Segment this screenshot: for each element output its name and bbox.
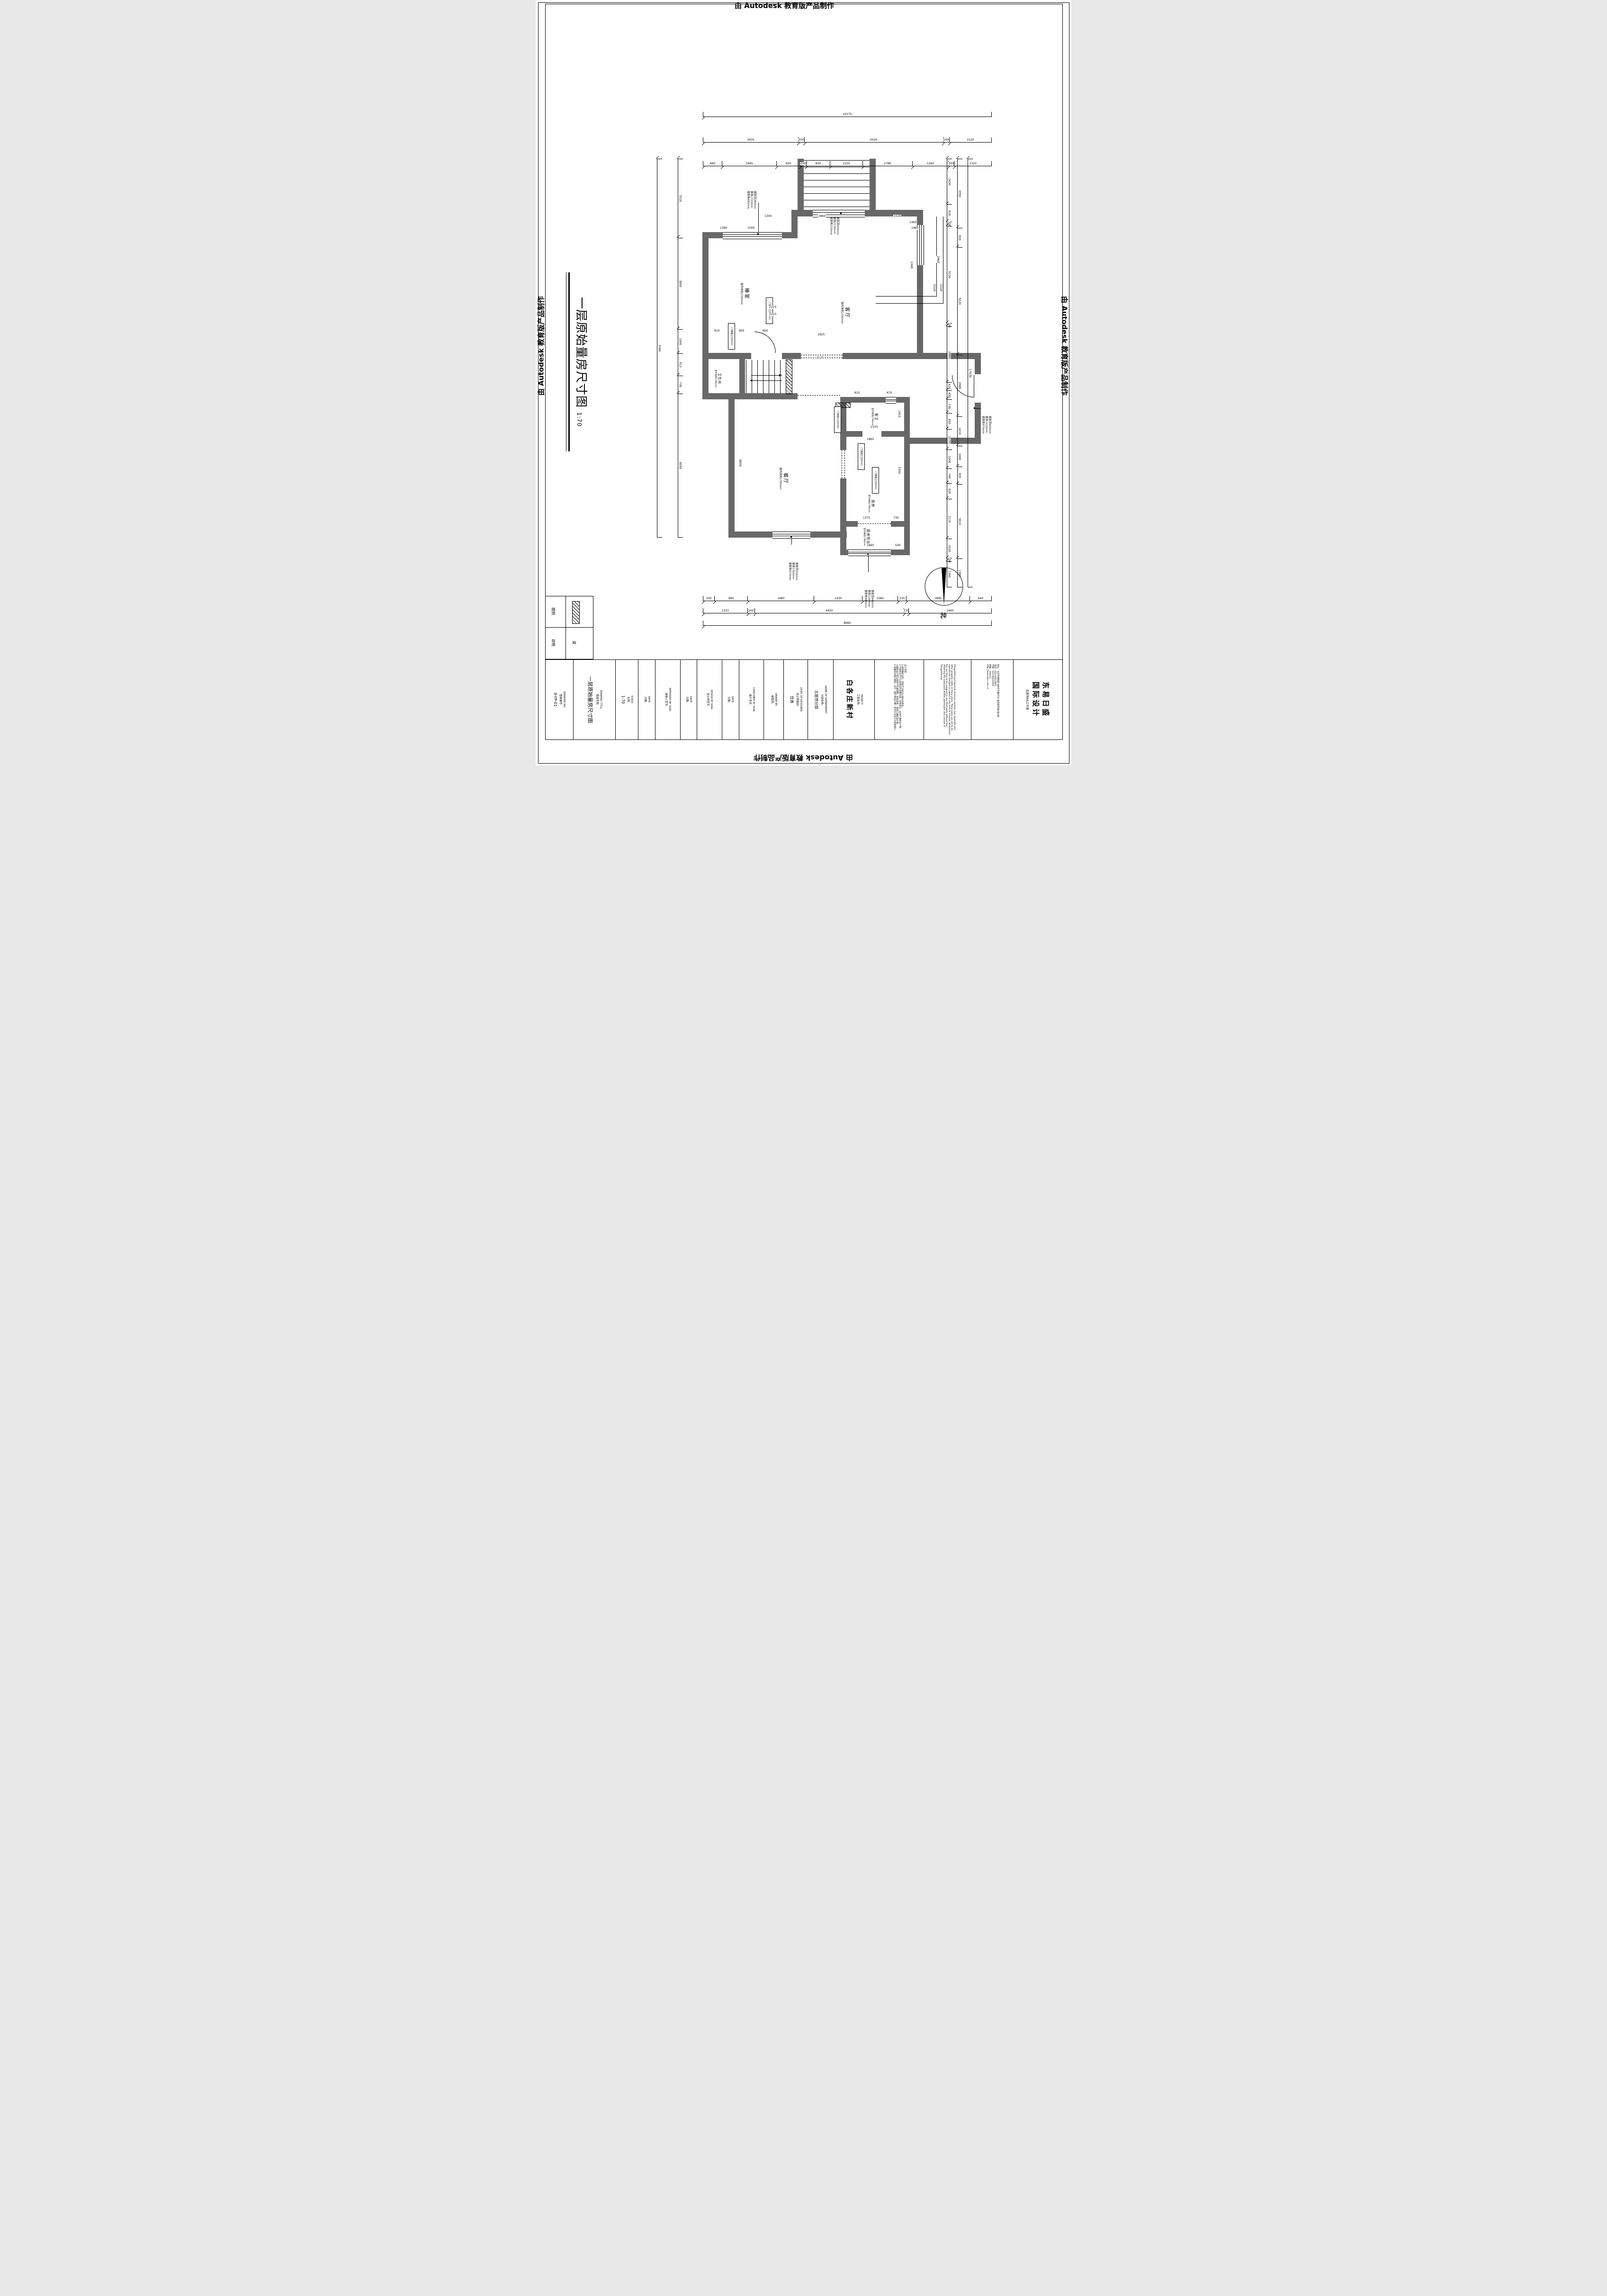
title-underline-thin bbox=[566, 272, 566, 451]
dim: 5220 bbox=[933, 284, 936, 291]
wall bbox=[791, 210, 798, 238]
window-guestbath bbox=[886, 397, 896, 404]
dim-segment: 640 bbox=[970, 596, 992, 601]
dim-value: 17630 bbox=[969, 368, 972, 378]
dim: 1380 bbox=[719, 226, 727, 230]
window-balcony bbox=[848, 549, 891, 556]
dim-segment: 3320 bbox=[678, 159, 683, 238]
dim-value: 3350 bbox=[958, 189, 961, 198]
dim: 5220 bbox=[939, 284, 943, 291]
tb-address: 地址：北京市朝阳区北四环东路65号 居然装饰城2座4层 电话：010-84633… bbox=[971, 660, 1013, 739]
dim-value: 1070 bbox=[948, 436, 951, 444]
dim: 2210 bbox=[769, 306, 777, 309]
page-title-scale: 1:70 bbox=[576, 412, 583, 427]
dim-chain-top-mid: 343520050202001520 bbox=[703, 137, 992, 143]
dim-segment: 1780 bbox=[862, 161, 913, 166]
legend-header: 图例 bbox=[551, 608, 556, 615]
dim-value: 920 bbox=[948, 210, 951, 216]
watermark-bottom: 由 Autodesk 教育版产品制作 bbox=[725, 752, 881, 764]
north-label: 北 bbox=[938, 608, 950, 622]
door-note: 门洞高2150mm bbox=[766, 297, 773, 324]
dim-value: 2980 bbox=[958, 382, 961, 390]
leader-dot bbox=[974, 407, 975, 409]
dim-value: 200 bbox=[798, 138, 804, 142]
dim-segment: 450 bbox=[947, 390, 952, 399]
opening-dash bbox=[842, 450, 842, 478]
dim: 730 bbox=[893, 516, 899, 520]
dim-segment: 200 bbox=[747, 608, 754, 613]
leader bbox=[975, 408, 981, 409]
dim: 3350 bbox=[898, 467, 901, 474]
dim-segment: 5020 bbox=[804, 137, 943, 142]
dim-value: 2430 bbox=[948, 178, 951, 186]
tb-drawing-title: DRAWING TITLE: 图纸名称: 一层原始量房尺寸图 bbox=[573, 660, 615, 739]
dim-value: 1260 bbox=[926, 162, 934, 165]
dim-value: 1060 bbox=[876, 597, 884, 600]
dim-chain-right-mid: 3350920522029801410100082036101360 bbox=[957, 159, 962, 587]
dim-value: 3320 bbox=[679, 194, 682, 202]
tb-notes: 设计说明: 1.除特殊标注外，所有尺寸标注以毫米为单位。 2.平面标注尺寸以现场… bbox=[874, 660, 924, 739]
dim: 2210 bbox=[769, 313, 777, 316]
tb-date: DATE: 日期: bbox=[722, 660, 739, 739]
dim: 1300 bbox=[764, 215, 772, 218]
leader-dot bbox=[757, 233, 759, 234]
leader bbox=[758, 203, 759, 232]
dim: 1460 bbox=[909, 221, 917, 224]
wall bbox=[843, 353, 923, 359]
wall-guestbath-top bbox=[840, 397, 910, 403]
dim-segment: 5220 bbox=[958, 247, 962, 355]
opening-dash bbox=[844, 450, 845, 478]
dim-value: 913 bbox=[679, 362, 682, 368]
room-label-bedroom: 睡室室内净高2780mm bbox=[738, 265, 753, 322]
arrow-left-icon: ◀ bbox=[750, 378, 752, 382]
stair-cut-hatch bbox=[786, 360, 792, 394]
dim-value: 6050 bbox=[679, 461, 682, 469]
dim-segment: 830 bbox=[806, 161, 830, 166]
dim-segment: 1980 bbox=[747, 596, 814, 601]
window-note-entry: 窗距顶400mm窗高2230mm窗距地150mm bbox=[828, 198, 840, 254]
dim-value: 200 bbox=[748, 609, 754, 612]
dim-segment: 1000 bbox=[678, 329, 683, 353]
dim-value: 660 bbox=[709, 162, 716, 165]
drawing-sheet: 由 Autodesk 教育版产品制作 由 Autodesk 教育版产品制作 由 … bbox=[536, 0, 1071, 765]
tb-consumer: CONSUMER BY SIGN: 客户签字: bbox=[739, 660, 763, 739]
dim: 2860 bbox=[818, 215, 826, 218]
dim-segment: 1430 bbox=[814, 596, 862, 601]
dim-segment: 830 bbox=[776, 161, 800, 166]
dim-value: 830 bbox=[815, 162, 821, 165]
wall-stair-right bbox=[870, 159, 876, 216]
dim-segment: 1260 bbox=[912, 161, 948, 166]
dim-segment: 2110 bbox=[947, 499, 952, 539]
dim: 1375 bbox=[862, 516, 871, 520]
tb-drawn: DRAWN BY: 制图员: bbox=[763, 660, 783, 739]
dim-value: 1945 bbox=[745, 162, 753, 165]
leader bbox=[791, 538, 792, 545]
dim: 540 bbox=[895, 544, 901, 547]
door-note: 门洞高2150mm bbox=[872, 467, 879, 494]
wall-kitchen-right bbox=[904, 397, 910, 521]
dim-segment: 1315 bbox=[703, 608, 747, 613]
dim-segment: 2430 bbox=[947, 159, 952, 204]
dim-segment: 5220 bbox=[947, 226, 952, 323]
legend-desc-header: 说明 bbox=[551, 639, 556, 647]
dim-segment: 2980 bbox=[947, 326, 952, 382]
dim-segment: 6050 bbox=[678, 394, 683, 538]
dim-segment: 10175 bbox=[703, 112, 992, 117]
dim-value: 10175 bbox=[842, 113, 852, 116]
dim: 900 bbox=[738, 329, 745, 333]
door-note: 门洞高2150mm bbox=[834, 406, 841, 433]
wall bbox=[702, 232, 709, 399]
dim-value: 1000 bbox=[958, 452, 961, 460]
dim: 1460 bbox=[911, 226, 919, 230]
wall bbox=[840, 521, 858, 527]
tb-level: LEVEL OF DESIGNER: 设计师级别: 优秀 bbox=[783, 660, 807, 739]
dim-value: 820 bbox=[958, 472, 961, 478]
dim-segment: 200 bbox=[798, 137, 804, 142]
dim-value: 820 bbox=[948, 488, 951, 495]
room-label-dining: 餐厅室内净高2780mm bbox=[777, 450, 791, 507]
dim-segment: 3435 bbox=[703, 137, 798, 142]
watermark-left: 由 Autodesk 教育版产品制作 bbox=[536, 294, 546, 398]
dim-value: 920 bbox=[958, 234, 961, 241]
dim-value: 5020 bbox=[870, 138, 878, 142]
dim-segment: 7060 bbox=[657, 159, 662, 538]
stair-arrow-line bbox=[751, 380, 782, 381]
dim-value: 730 bbox=[948, 403, 951, 409]
wall bbox=[702, 353, 751, 359]
dim-segment: 1150 bbox=[830, 161, 862, 166]
dim-segment: 2465 bbox=[908, 608, 992, 613]
tb-date: DATE: 日期: bbox=[638, 660, 655, 739]
wall-mid-vertical bbox=[840, 478, 846, 521]
leader bbox=[868, 555, 869, 572]
dim-segment: 3350 bbox=[958, 159, 962, 228]
dim: 1895 bbox=[866, 544, 874, 547]
dim-value: 760 bbox=[948, 473, 951, 479]
dim-value: 5220 bbox=[958, 297, 961, 305]
dim-value: 3435 bbox=[746, 138, 754, 142]
window-note-bedroom: 窗距顶380mm窗高1720mm窗距地680mm bbox=[745, 170, 757, 230]
tb-project: PROJECT: 工程名称: 白各庄新村 bbox=[833, 660, 874, 739]
dim: 1925 bbox=[817, 333, 825, 336]
page-title: 一层原始量房尺寸图 1:70 bbox=[569, 270, 595, 454]
dim: 2960 bbox=[936, 256, 940, 263]
dim: 2125 bbox=[816, 356, 824, 360]
dim-chain-right-detail: 2430920200522015029804104507308501070100… bbox=[947, 159, 952, 587]
dim-value: 830 bbox=[785, 162, 791, 165]
window-note-dining: 窗距顶330mm窗高1760mm窗距地970mm bbox=[787, 545, 799, 598]
window-bedroom bbox=[723, 232, 782, 239]
dim-value: 1150 bbox=[842, 162, 850, 165]
dim-chain-right-total: 17630 bbox=[968, 159, 973, 587]
entry-door-leaf bbox=[974, 375, 974, 397]
dim-value: 2110 bbox=[948, 515, 951, 523]
wall bbox=[891, 521, 910, 527]
opening-dash bbox=[801, 355, 843, 355]
leader-dot bbox=[867, 553, 869, 555]
dim-value: 200 bbox=[943, 138, 949, 142]
wall bbox=[782, 353, 801, 359]
page-title-text: 一层原始量房尺寸图 bbox=[575, 297, 588, 408]
dim-value: 1430 bbox=[834, 597, 842, 600]
window-note-vestibule: 窗距顶400mm窗高1410mm窗距地970mm bbox=[980, 397, 992, 453]
dim-segment: 2980 bbox=[958, 355, 962, 416]
dim: 600 bbox=[762, 329, 768, 333]
dim-value: 1520 bbox=[966, 138, 974, 142]
dim-segment: 410 bbox=[947, 382, 952, 390]
dim-chain-top-total: 10175 bbox=[703, 112, 992, 117]
dim-segment: 235 bbox=[898, 596, 906, 601]
dim-segment: 660 bbox=[703, 161, 722, 166]
dim-value: 2980 bbox=[948, 351, 951, 359]
dim-segment: 1945 bbox=[722, 161, 777, 166]
dim-value: 200 bbox=[800, 162, 806, 165]
dim-chain-left-detail: 3320385010009137306050 bbox=[678, 159, 683, 538]
dim-segment: 330 bbox=[703, 596, 714, 601]
wall-vestibule-right bbox=[975, 353, 981, 374]
dim: 1000 bbox=[747, 226, 755, 230]
tb-company: 东易日盛 国际设计 北居然A6工作室 bbox=[1013, 660, 1062, 739]
dim: 1410 bbox=[898, 410, 901, 417]
dim-segment: 200 bbox=[800, 161, 806, 166]
tb-date: DATE: 日期: bbox=[680, 660, 697, 739]
dim-value: 1780 bbox=[883, 162, 891, 165]
tb-approved: APPROVED BY SIGN: 审核人签字: bbox=[655, 660, 680, 739]
dim-value: 3850 bbox=[679, 280, 682, 288]
leader-dot bbox=[790, 536, 792, 538]
dim-segment: 130 bbox=[904, 608, 908, 613]
dim-segment: 3850 bbox=[678, 238, 683, 329]
dim-segment: 1410 bbox=[958, 416, 962, 446]
legend-beam-label: 梁 bbox=[572, 641, 577, 645]
dim-segment: 1520 bbox=[949, 137, 992, 142]
dim: 1530 bbox=[893, 215, 901, 218]
dim-value: 7060 bbox=[658, 344, 661, 352]
dim-value: 5220 bbox=[948, 271, 951, 279]
dim-segment: 4450 bbox=[754, 608, 904, 613]
dim-segment: 1060 bbox=[862, 596, 898, 601]
dim-value: 730 bbox=[679, 382, 682, 388]
room-label-living: 客厅室内净高2780mm bbox=[839, 284, 853, 341]
dim-chain-left-total: 7060 bbox=[657, 159, 662, 538]
dim: 2330 bbox=[870, 425, 878, 429]
dim-value: 3610 bbox=[958, 517, 961, 525]
dim-value: 1000 bbox=[679, 338, 682, 346]
dim-value: 235 bbox=[899, 597, 905, 600]
dim-value: 8660 bbox=[843, 621, 851, 625]
dim-value: 1410 bbox=[958, 427, 961, 435]
tb-designer: DESIGN BY SIGN: 设计师签字: bbox=[697, 660, 721, 739]
stair-arrow-line bbox=[751, 375, 782, 376]
dim-segment: 200 bbox=[943, 137, 949, 142]
tb-drawing-no: DRAWING NO: 图纸编号: A-YP-01 bbox=[546, 660, 573, 739]
tb-department: NAME OF DEPARTMENT: 分部名称: 北居然分部 bbox=[808, 660, 833, 739]
dim-value: 1315 bbox=[721, 609, 729, 612]
tb-scale: SCALE: 比例: 1:70 bbox=[615, 660, 638, 739]
dim-value: 4450 bbox=[825, 609, 833, 612]
title-block: DRAWING NO: 图纸编号: A-YP-01 DRAWING TITLE:… bbox=[545, 659, 1063, 740]
opening-dash bbox=[798, 395, 840, 396]
dim: 670 bbox=[886, 391, 892, 395]
dim-value: 850 bbox=[948, 418, 951, 424]
leader-dot bbox=[840, 213, 842, 214]
dim-value: 1980 bbox=[777, 597, 785, 600]
watermark-right: 由 Autodesk 教育版产品制作 bbox=[1059, 294, 1070, 398]
legend-divider bbox=[546, 627, 593, 628]
dim: 810 bbox=[854, 391, 860, 395]
watermark-top: 由 Autodesk 教育版产品制作 bbox=[735, 0, 834, 10]
dim-value: 640 bbox=[978, 597, 984, 600]
door-note: 门洞高2150mm bbox=[858, 443, 865, 470]
dim: 2340 bbox=[910, 261, 913, 269]
dim: 610 bbox=[714, 329, 720, 333]
dim: 1960 bbox=[866, 438, 874, 441]
dim-segment: 985 bbox=[714, 596, 747, 601]
terrace-outline-inner bbox=[876, 216, 937, 297]
dim-value: 985 bbox=[728, 597, 734, 600]
dim-value: 330 bbox=[706, 597, 712, 600]
dim-value: 1000 bbox=[948, 455, 951, 463]
north-arrow bbox=[924, 567, 964, 606]
arrow-right-icon: ▶ bbox=[779, 373, 781, 377]
dim-value: 1020 bbox=[948, 544, 951, 552]
dim-segment: 913 bbox=[678, 353, 683, 376]
dim-segment: 17630 bbox=[968, 159, 973, 587]
legend-divider bbox=[566, 596, 566, 659]
legend-table: 图例 说明 梁 bbox=[545, 596, 593, 659]
dim: 8650 bbox=[738, 459, 742, 467]
wall-dining-left bbox=[728, 393, 735, 538]
door-note: 门洞高2150mm bbox=[728, 323, 735, 350]
dim-segment: 3610 bbox=[958, 484, 962, 558]
legend-beam-swatch bbox=[572, 601, 580, 624]
tb-copyright: Dongyirisheng Expressly reserves common … bbox=[924, 660, 971, 739]
room-label-bath: 卫生间室内净高2780mm bbox=[712, 360, 724, 397]
